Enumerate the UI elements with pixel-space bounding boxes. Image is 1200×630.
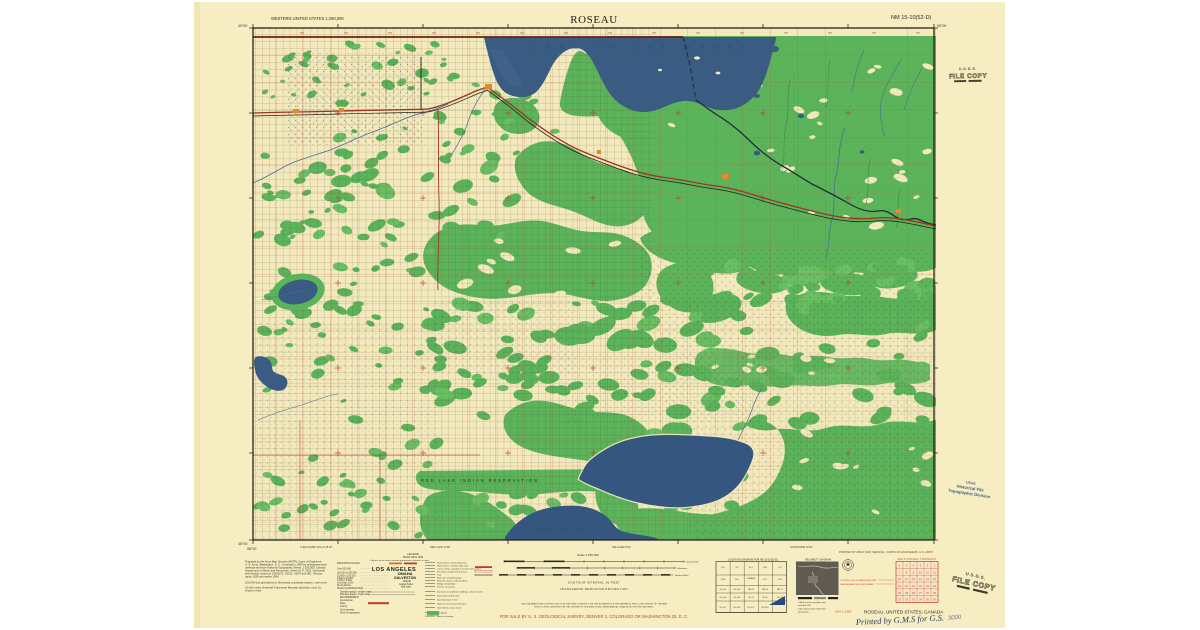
svg-text:Scale 1:250,000: Scale 1:250,000 [577,553,599,557]
svg-text:raphy 1939 and earlier 1954.: raphy 1939 and earlier 1954. [245,575,280,579]
svg-text:52-J: 52-J [721,567,725,569]
svg-text:NL-14-7: NL-14-7 [720,607,727,609]
svg-text:KELLIHER 8 MI.: KELLIHER 8 MI. [612,545,631,549]
svg-text:NM-15: NM-15 [748,589,754,591]
svg-text:LAKE OF THE WOODS: LAKE OF THE WOODS [534,45,754,51]
svg-text:96°00: 96°00 [247,547,256,551]
svg-text:Red Lake: Red Lake [400,586,412,589]
svg-text:Kilometers: Kilometers [677,567,688,570]
svg-text:NM-17: NM-17 [777,589,783,591]
svg-text:Standard gauge, single track: Standard gauge, single track [340,593,370,596]
svg-text:49°00: 49°00 [238,24,247,28]
svg-text:100,000 to 500,000: 100,000 to 500,000 [337,572,358,575]
svg-text:62-L: 62-L [749,567,753,569]
svg-text:County: County [340,605,348,608]
svg-text:Hard surface, heavy duty road: Hard surface, heavy duty road [437,562,467,565]
svg-text:ROSEAU: ROSEAU [570,14,618,26]
svg-text:NL-14-8: NL-14-8 [734,607,741,609]
svg-text:52-M: 52-M [721,579,726,581]
svg-text:UPPER RED LAKE: UPPER RED LAKE [628,477,733,482]
svg-text:Tunnel; causeway: Tunnel; causeway [437,587,455,589]
svg-text:Bridge; drawbridge: Bridge; drawbridge [437,583,456,586]
svg-text:52-D: 52-D [735,579,740,581]
svg-text:CONTROLLED ON RAILROAD LINE: CONTROLLED ON RAILROAD LINE [840,579,877,582]
svg-text:U.S.G.S.: U.S.G.S. [959,67,977,71]
svg-text:CONTOUR INTERVAL 50 FEET: CONTOUR INTERVAL 50 FEET [568,581,621,585]
svg-text:Dirt road; unimproved dirt roa: Dirt road; unimproved dirt road [437,571,467,574]
svg-text:RELIABILITY DIAGRAM: RELIABILITY DIAGRAM [805,559,831,562]
svg-text:Nautical Miles: Nautical Miles [675,574,690,577]
svg-text:NORTHOME 18 MI.: NORTHOME 18 MI. [790,545,813,549]
svg-text:NM-16: NM-16 [762,589,768,591]
svg-text:Figures on the roads indicate: Figures on the roads indicate approximat… [371,559,431,562]
svg-text:Important or landmark building: Important or landmark buildings; school;… [437,591,484,594]
svg-text:2 Aerial pictorial from 1939: 2 Aerial pictorial from 1939 aerial [798,608,826,611]
svg-text:Rural districts: Rural districts [337,584,352,587]
svg-text:RECOMMENDED: RECOMMENDED [340,597,359,599]
svg-text:PRINTED BY ARMY MAP SERVICE, C: PRINTED BY ARMY MAP SERVICE, CORPS OF EN… [839,550,933,554]
svg-text:RED LAKE 10 MI.: RED LAKE 10 MI. [430,545,451,549]
svg-text:Railroad station; railroad sid: Railroad station; railroad siding [437,580,468,583]
svg-text:ROAD DATA 1956: ROAD DATA 1956 [403,556,424,559]
svg-text:LAKE AGREES WITH BOUNDARY: LAKE AGREES WITH BOUNDARY [840,583,875,586]
svg-text:Standard gauge, multiple track: Standard gauge, multiple track [340,591,372,594]
svg-text:NM 15-10(52-D): NM 15-10(52-D) [891,15,932,21]
svg-text:FILE COPY: FILE COPY [949,73,988,81]
svg-text:NL-14-4: NL-14-4 [720,597,727,599]
svg-text:shown in blue: shown in blue [245,589,262,593]
svg-text:48°00: 48°00 [238,542,247,546]
svg-text:1 Medium scale maps/plans map: 1 Medium scale maps/plans map [798,602,826,604]
svg-text:LOCATION DIAGRAM FOR NM 15-10(: LOCATION DIAGRAM FOR NM 15-10(52-D) [728,559,778,562]
svg-text:NL-14-2: NL-14-2 [734,589,741,591]
svg-text:FOR SALE BY U. S. GEOLOGICAL S: FOR SALE BY U. S. GEOLOGICAL SURVEY, DEN… [500,614,689,619]
svg-text:MAY 1 1959: MAY 1 1959 [835,610,852,614]
svg-text:Railroad: standard gauge: Railroad: standard gauge [437,577,462,580]
svg-text:INDICATED PLACES: INDICATED PLACES [337,562,360,565]
svg-text:Intermittent or dry stream: Intermittent or dry stream [437,607,462,610]
svg-text:NL-15-7: NL-15-7 [748,607,755,609]
svg-text:THIS DIAGRAM IS RECONSTRUCTED: THIS DIAGRAM IS RECONSTRUCTED FOR THE SH… [521,603,668,606]
svg-text:HOW TO FIND CENTERS FOR THE CE: HOW TO FIND CENTERS FOR THE CENTER OF TH… [534,606,654,609]
svg-text:NL-15-8: NL-15-8 [762,607,769,609]
svg-text:Water at normal pool elevation: Water at normal pool elevation [437,603,467,606]
svg-text:Less than 1,000: Less than 1,000 [337,581,354,584]
svg-text:100,000-foot grid based on Min: 100,000-foot grid based on Minnesota coo… [245,581,328,585]
svg-text:Over 500,000: Over 500,000 [337,568,352,571]
svg-text:95°00: 95°00 [937,24,946,28]
svg-text:CANADA: CANADA [747,577,756,580]
svg-text:52-H: 52-H [763,567,768,569]
svg-text:WESTERN UNITED STATES 1:250,00: WESTERN UNITED STATES 1:250,000 [271,16,344,21]
svg-text:SECTIONIZED TOWNSHIP: SECTIONIZED TOWNSHIP [897,558,937,561]
svg-text:photography: photography [798,611,809,614]
svg-text:LOWER RED LAKE: LOWER RED LAKE [530,528,591,532]
svg-text:TRANSVERSE MERCATOR PROJECTION: TRANSVERSE MERCATOR PROJECTION [560,587,628,591]
svg-text:NL-16: NL-16 [762,597,767,599]
svg-text:Civil township: Civil township [340,608,355,611]
svg-text:NL-15: NL-15 [748,597,753,599]
svg-text:State: State [340,602,346,605]
svg-text:NL-14-5: NL-14-5 [734,597,741,599]
svg-text:controlled 1947: controlled 1947 [798,604,811,607]
svg-text:Spot elevation in feet: Spot elevation in feet [437,599,458,602]
svg-text:ROAD CLASSIFICATION: ROAD CLASSIFICATION [337,587,363,590]
svg-text:Trail: Trail [437,574,442,577]
svg-text:52-I: 52-I [778,567,782,569]
svg-text:International: International [340,599,353,602]
svg-text:52-I: 52-I [735,567,739,569]
svg-text:NL-14-1: NL-14-1 [720,589,727,591]
svg-text:Statute Miles: Statute Miles [686,561,700,564]
svg-text:THIEF RIVER FALLS 28 MI.: THIEF RIVER FALLS 28 MI. [300,545,333,549]
svg-text:Point of registration: Point of registration [340,612,361,615]
svg-text:RED LAKE INDIAN RESERVATION: RED LAKE INDIAN RESERVATION [421,478,539,483]
svg-text:Marsh or swamp: Marsh or swamp [437,615,454,618]
svg-text:Hard surface, medium duty road: Hard surface, medium duty road [437,565,469,568]
svg-text:Horizontal control point: Horizontal control point [437,595,460,598]
